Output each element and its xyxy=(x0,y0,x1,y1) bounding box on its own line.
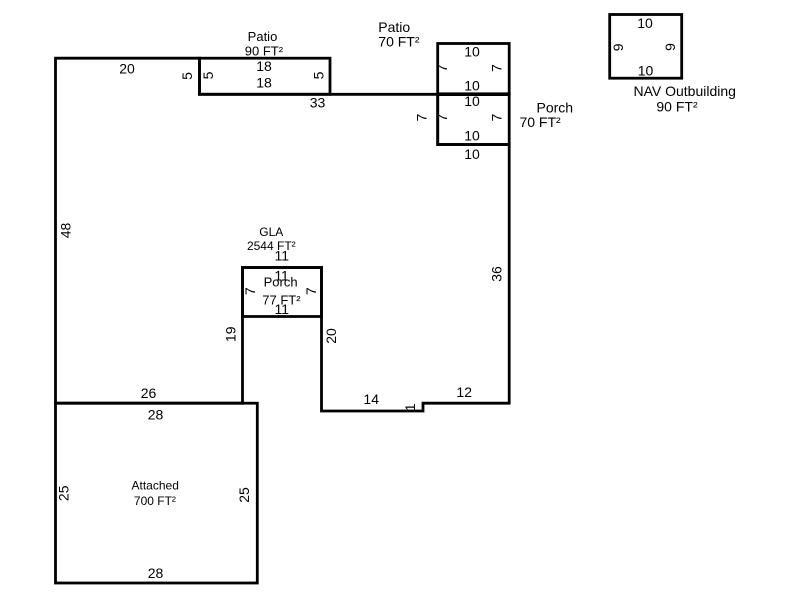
svg-text:28: 28 xyxy=(148,407,164,423)
svg-text:25: 25 xyxy=(56,485,72,501)
svg-text:10: 10 xyxy=(464,146,480,162)
svg-text:26: 26 xyxy=(141,385,157,401)
svg-text:5: 5 xyxy=(179,72,195,80)
svg-text:10: 10 xyxy=(638,63,654,79)
svg-text:7: 7 xyxy=(488,113,504,121)
svg-text:5: 5 xyxy=(200,71,216,79)
svg-text:11: 11 xyxy=(275,301,290,317)
svg-text:36: 36 xyxy=(489,266,505,282)
svg-text:20: 20 xyxy=(323,328,339,344)
svg-text:14: 14 xyxy=(363,391,379,407)
svg-text:GLA: GLA xyxy=(259,225,283,239)
svg-text:12: 12 xyxy=(456,384,472,400)
svg-text:5: 5 xyxy=(311,71,327,79)
svg-text:1: 1 xyxy=(402,403,418,411)
svg-text:70 FT²: 70 FT² xyxy=(378,34,420,50)
svg-text:90 FT²: 90 FT² xyxy=(245,44,284,59)
svg-text:18: 18 xyxy=(256,75,272,91)
svg-text:11: 11 xyxy=(275,247,290,263)
svg-text:18: 18 xyxy=(256,58,272,74)
svg-text:10: 10 xyxy=(637,15,653,31)
svg-text:7: 7 xyxy=(434,64,450,72)
svg-text:700 FT²: 700 FT² xyxy=(134,494,176,508)
svg-text:7: 7 xyxy=(434,113,450,121)
svg-text:10: 10 xyxy=(464,93,480,109)
svg-text:Attached: Attached xyxy=(132,479,179,493)
svg-text:48: 48 xyxy=(57,223,73,239)
svg-text:25: 25 xyxy=(236,487,252,503)
svg-text:7: 7 xyxy=(242,287,258,295)
svg-text:10: 10 xyxy=(464,77,480,93)
svg-text:90 FT²: 90 FT² xyxy=(656,99,698,115)
svg-text:70 FT²: 70 FT² xyxy=(519,114,561,130)
svg-text:Patio: Patio xyxy=(248,29,278,44)
svg-text:10: 10 xyxy=(464,44,480,60)
svg-text:Porch: Porch xyxy=(537,99,574,115)
svg-text:Patio: Patio xyxy=(378,19,410,35)
svg-text:20: 20 xyxy=(119,61,135,77)
svg-text:10: 10 xyxy=(464,128,480,144)
svg-text:28: 28 xyxy=(148,565,164,581)
svg-text:9: 9 xyxy=(662,43,678,51)
svg-text:7: 7 xyxy=(414,113,430,121)
svg-text:Porch: Porch xyxy=(264,275,298,290)
svg-text:9: 9 xyxy=(610,43,626,51)
svg-text:7: 7 xyxy=(488,64,504,72)
svg-text:NAV Outbuilding: NAV Outbuilding xyxy=(633,83,735,99)
svg-text:33: 33 xyxy=(310,95,326,111)
svg-text:7: 7 xyxy=(303,287,319,295)
svg-text:19: 19 xyxy=(223,326,239,342)
